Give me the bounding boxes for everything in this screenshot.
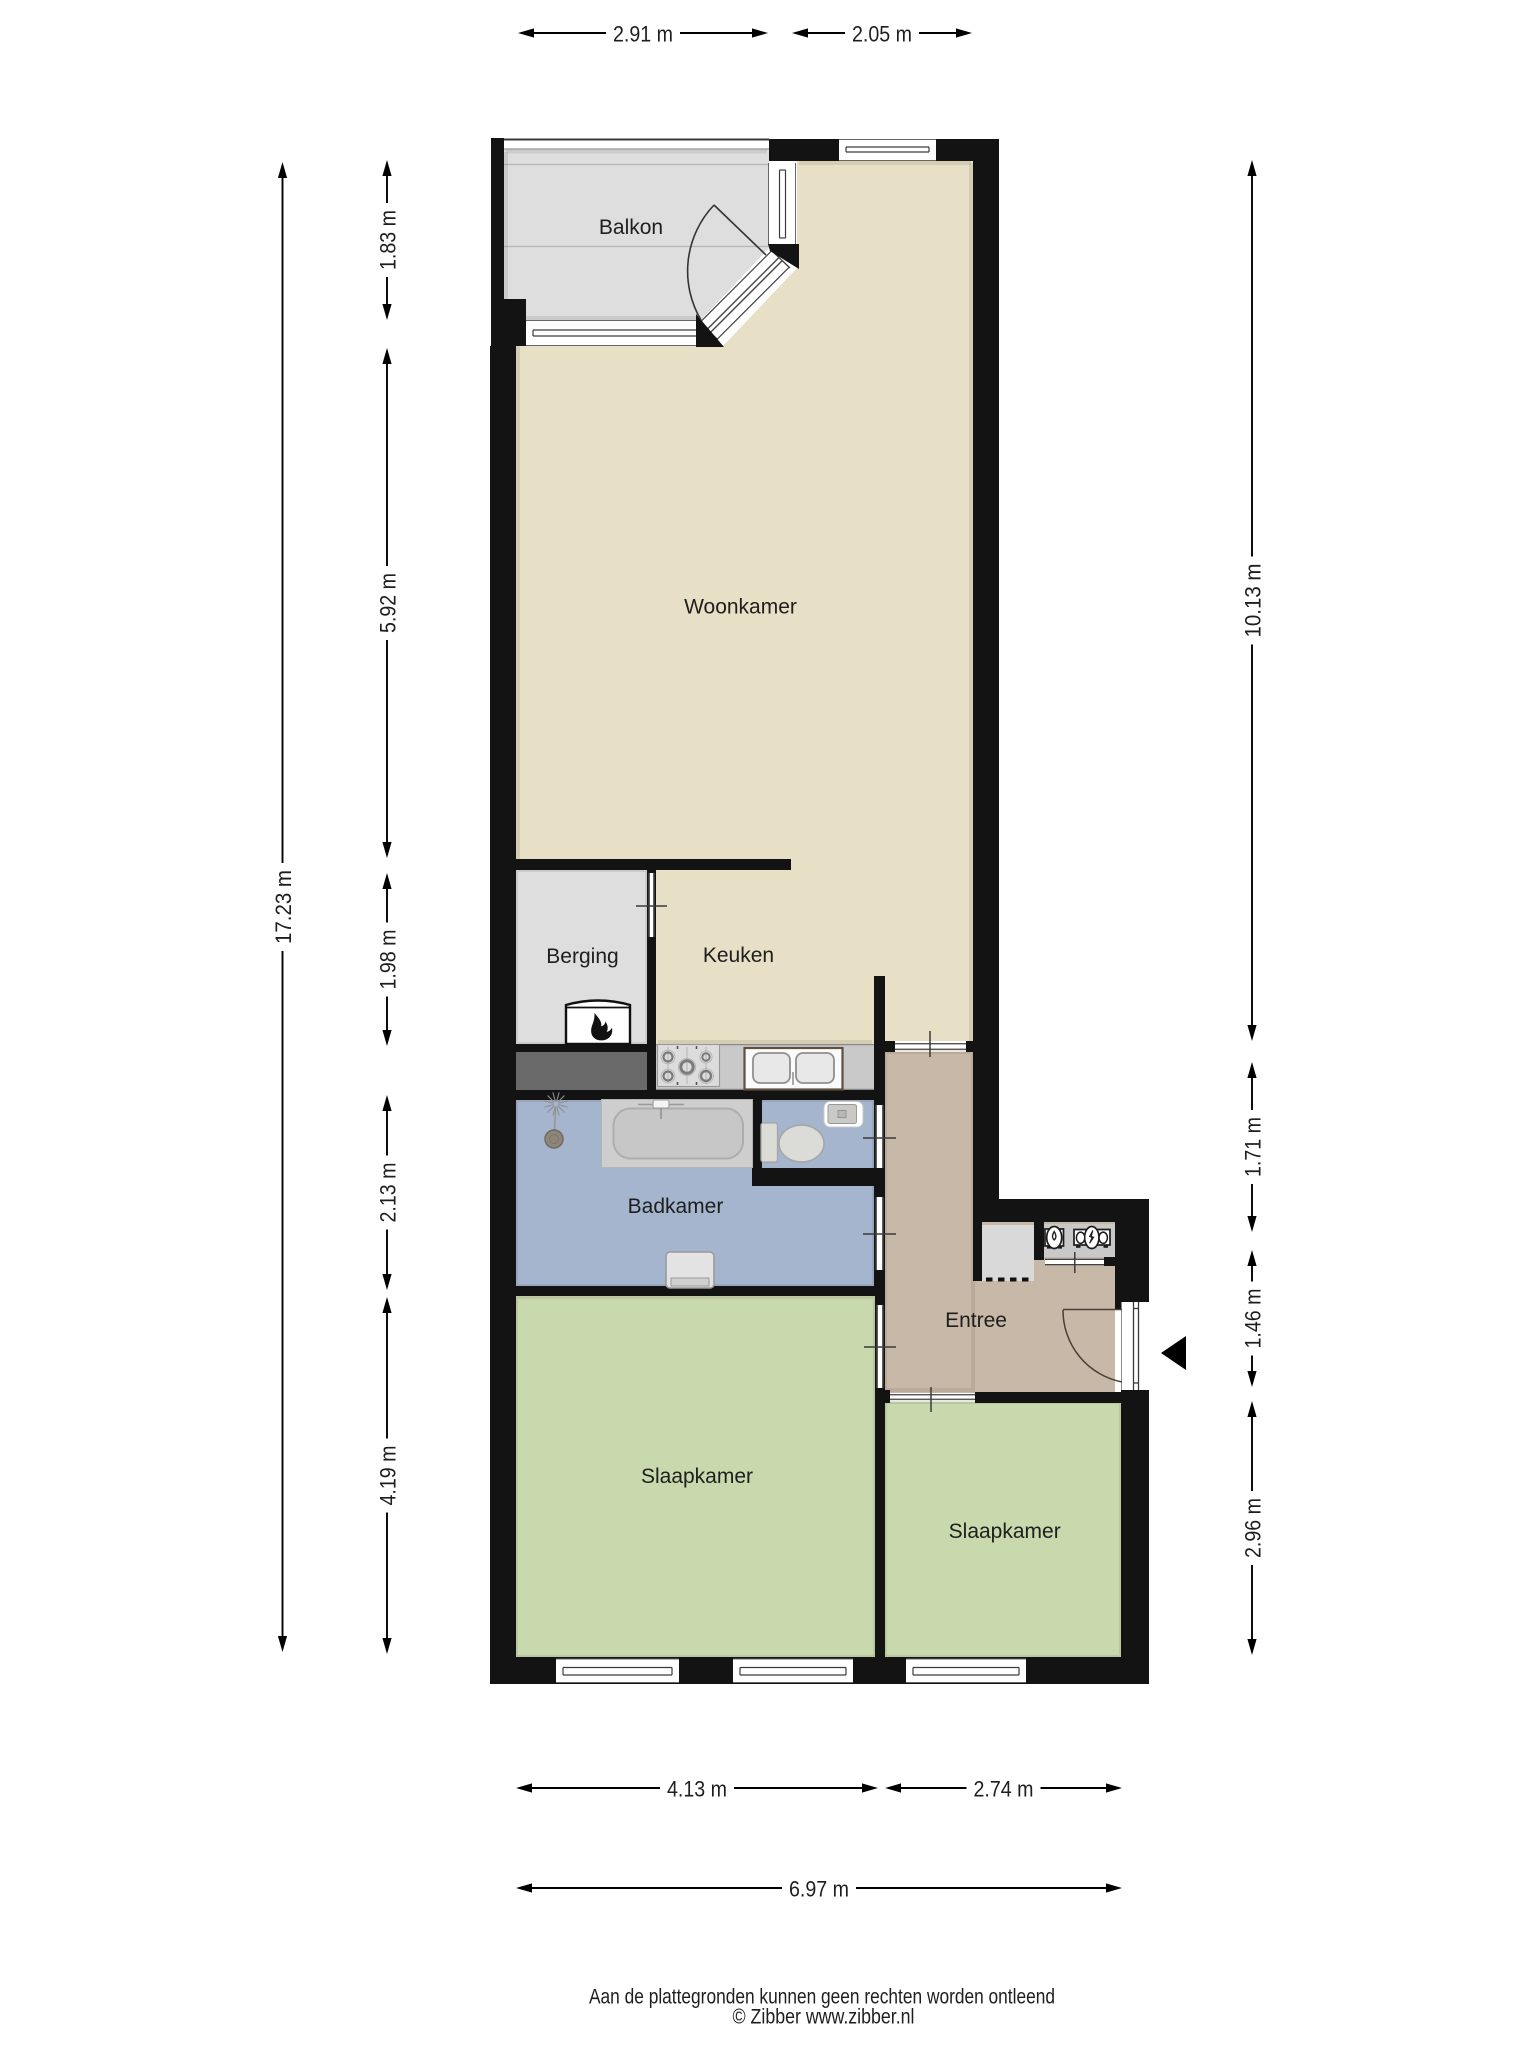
svg-text:© Zibber www.zibber.nl: © Zibber www.zibber.nl [733,2006,915,2029]
svg-text:6.97 m: 6.97 m [789,1877,849,1902]
svg-text:17.23 m: 17.23 m [271,870,296,944]
svg-text:Badkamer: Badkamer [628,1195,724,1218]
svg-text:Balkon: Balkon [599,216,663,239]
svg-text:Entree: Entree [945,1309,1007,1332]
svg-text:2.96 m: 2.96 m [1241,1498,1266,1558]
svg-text:10.13 m: 10.13 m [1241,564,1266,638]
svg-text:2.74 m: 2.74 m [974,1777,1034,1802]
svg-text:1.98 m: 1.98 m [376,930,401,990]
svg-text:2.13 m: 2.13 m [376,1163,401,1223]
svg-text:4.13 m: 4.13 m [667,1777,727,1802]
svg-text:1.83 m: 1.83 m [376,210,401,270]
svg-text:2.05 m: 2.05 m [852,22,912,47]
svg-text:Berging: Berging [546,945,618,968]
svg-text:4.19 m: 4.19 m [376,1446,401,1506]
svg-text:Slaapkamer: Slaapkamer [949,1520,1061,1543]
svg-text:5.92 m: 5.92 m [376,573,401,633]
svg-text:Keuken: Keuken [703,944,774,967]
svg-text:1.46 m: 1.46 m [1241,1289,1266,1349]
svg-text:Slaapkamer: Slaapkamer [641,1465,753,1488]
svg-text:2.91 m: 2.91 m [613,22,673,47]
svg-text:Woonkamer: Woonkamer [684,596,797,619]
svg-text:1.71 m: 1.71 m [1241,1117,1266,1177]
